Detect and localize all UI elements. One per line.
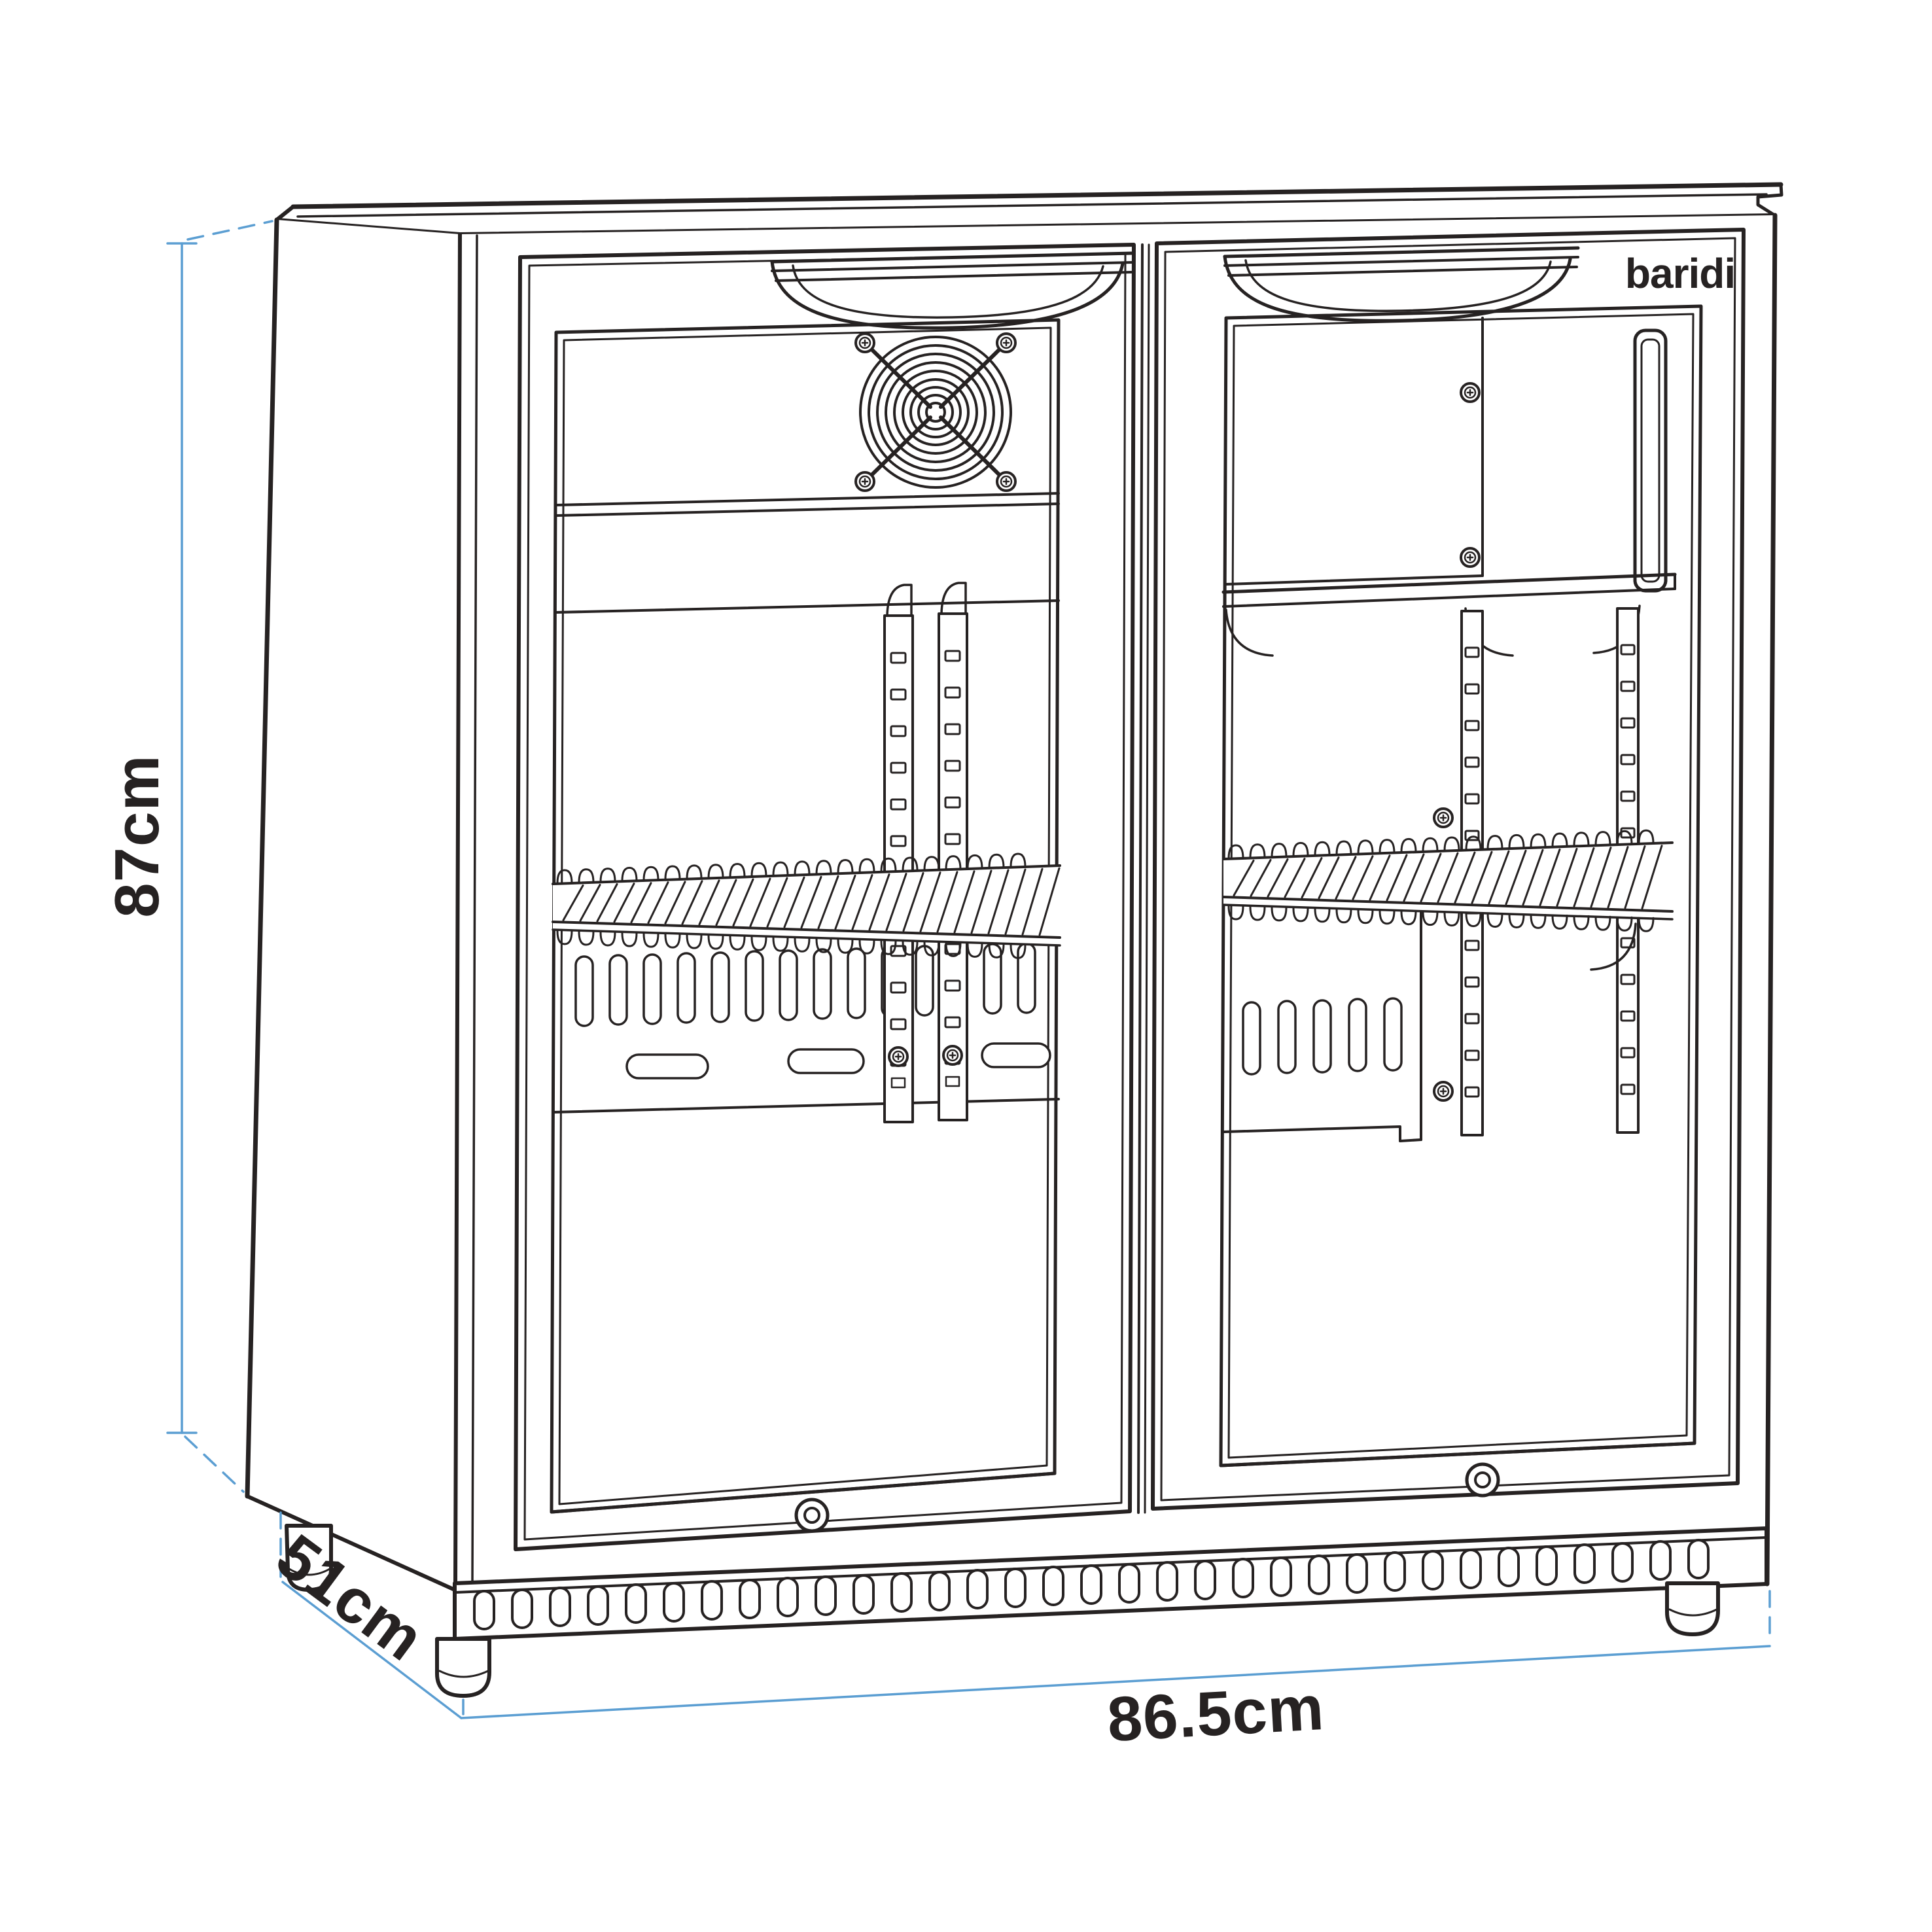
left-door-lock-icon [796, 1500, 828, 1531]
width-dimension-label: 86.5cm [1106, 1673, 1326, 1755]
right-door [1153, 230, 1744, 1509]
fridge-dimension-diagram: baridi 87cm 51cm 86.5cm [0, 0, 1932, 1932]
height-dimension-label: 87cm [102, 754, 172, 918]
front-right-foot [1667, 1583, 1718, 1634]
front-left-foot [437, 1639, 489, 1696]
right-door-lock-icon [1467, 1464, 1498, 1496]
diagram-canvas: baridi 87cm 51cm 86.5cm [0, 0, 1932, 1932]
side-panel [247, 220, 460, 1639]
left-door [516, 245, 1134, 1549]
brand-logo: baridi [1625, 250, 1735, 297]
interior-light-strip [1635, 330, 1666, 591]
